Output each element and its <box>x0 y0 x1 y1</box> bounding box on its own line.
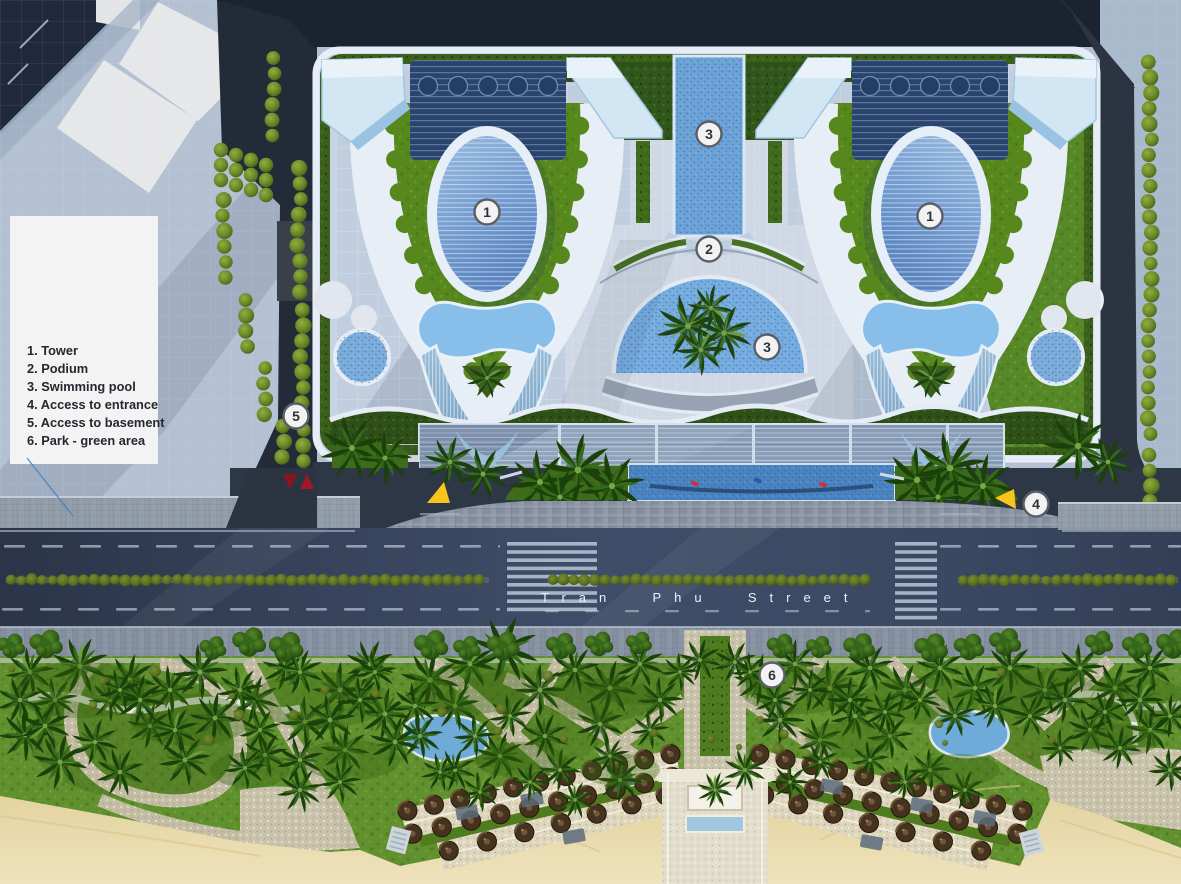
svg-text:2. Podium: 2. Podium <box>27 361 88 376</box>
svg-text:2: 2 <box>705 241 713 257</box>
svg-text:4: 4 <box>1032 496 1040 512</box>
svg-text:4. Access to entrance: 4. Access to entrance <box>27 397 158 412</box>
svg-text:Tran Phu Street: Tran Phu Street <box>541 590 861 605</box>
svg-text:5: 5 <box>292 408 300 424</box>
svg-text:5. Access to basement: 5. Access to basement <box>27 415 165 430</box>
svg-text:3. Swimming pool: 3. Swimming pool <box>27 379 136 394</box>
svg-text:6: 6 <box>768 667 776 683</box>
svg-text:3: 3 <box>763 339 771 355</box>
svg-text:1: 1 <box>483 204 491 220</box>
svg-text:1: 1 <box>926 208 934 224</box>
svg-text:1. Tower: 1. Tower <box>27 343 78 358</box>
svg-text:6. Park - green area: 6. Park - green area <box>27 433 146 448</box>
svg-text:3: 3 <box>705 126 713 142</box>
